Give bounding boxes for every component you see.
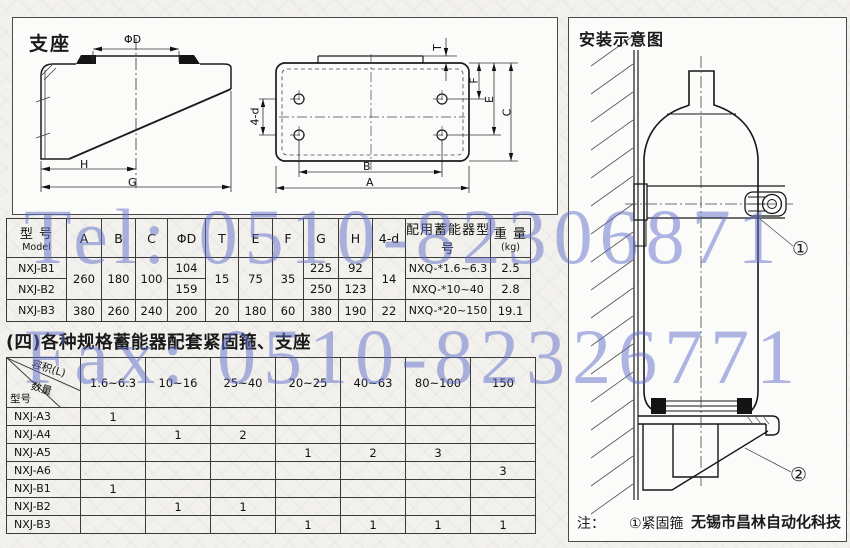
cell-qty <box>276 408 341 426</box>
cell-qty <box>471 498 536 516</box>
qty-row-nxj-b3: NXJ-B3 1 1 1 1 <box>7 516 536 534</box>
cell-h: 123 <box>339 279 373 300</box>
cell-weight: 2.8 <box>491 279 531 300</box>
column-header-t: T <box>206 219 239 258</box>
cell-qty <box>146 480 211 498</box>
dim-label-t: T <box>432 44 443 51</box>
spec-row-nxj-b3: NXJ-B3 380 260 240 200 20 180 60 380 190… <box>7 300 531 322</box>
dim-label-h: H <box>80 159 88 170</box>
cell-qty <box>81 516 146 534</box>
cell-h: 92 <box>339 258 373 279</box>
cell-model: NXJ-B1 <box>7 258 67 279</box>
cell-g: 250 <box>304 279 339 300</box>
cell-qty: 2 <box>211 426 276 444</box>
cell-qty <box>341 480 406 498</box>
installation-panel: 安装示意图 ① ② 注： ①紧固箍 无锡市昌林自动化科技 <box>568 17 847 542</box>
cell-h: 190 <box>339 300 373 322</box>
cell-t: 20 <box>206 300 239 322</box>
cell-model: NXJ-A6 <box>7 462 81 480</box>
cell-qty: 1 <box>81 408 146 426</box>
column-header-model: 型 号 Model <box>7 219 67 258</box>
dim-label-a: A <box>366 177 374 188</box>
cell-qty <box>211 408 276 426</box>
cell-weight: 2.5 <box>491 258 531 279</box>
cell-qty <box>276 498 341 516</box>
cell-model: NXJ-B2 <box>7 279 67 300</box>
cell-a: 260 <box>67 258 102 300</box>
cell-phid: 159 <box>168 279 206 300</box>
cell-qty: 1 <box>146 498 211 516</box>
column-header-b: B <box>102 219 136 258</box>
cell-qty: 1 <box>81 480 146 498</box>
column-header-c: C <box>136 219 168 258</box>
dim-label-e: E <box>484 96 495 103</box>
cell-qty <box>341 498 406 516</box>
cell-model: NXJ-A4 <box>7 426 81 444</box>
cell-qty: 3 <box>471 462 536 480</box>
spec-table: 型 号 Model A B C ΦD T E F G H 4-d 配用蓄能器型号… <box>6 218 531 322</box>
cell-phid: 200 <box>168 300 206 322</box>
cell-e: 75 <box>239 258 273 300</box>
cell-c: 240 <box>136 300 168 322</box>
header-model-en: Model <box>7 242 66 253</box>
qty-row-nxj-a4: NXJ-A4 1 2 <box>7 426 536 444</box>
cell-qty <box>341 408 406 426</box>
cell-4d: 22 <box>373 300 406 322</box>
cell-qty <box>81 426 146 444</box>
cell-qty <box>406 480 471 498</box>
cell-qty <box>211 516 276 534</box>
cell-accumulator: NXQ-*20~150 <box>406 300 491 322</box>
cell-qty <box>406 498 471 516</box>
bracket-views-drawing <box>13 18 557 214</box>
cell-4d: 14 <box>373 258 406 300</box>
cell-qty <box>146 462 211 480</box>
cell-model: NXJ-A3 <box>7 408 81 426</box>
qty-row-nxj-a5: NXJ-A5 1 2 3 <box>7 444 536 462</box>
cell-weight: 19.1 <box>491 300 531 322</box>
dim-label-4d: 4-d <box>249 108 260 126</box>
dim-label-phi-d: ΦD <box>124 34 141 45</box>
cell-model: NXJ-A5 <box>7 444 81 462</box>
cell-e: 180 <box>239 300 273 322</box>
cell-qty <box>81 498 146 516</box>
column-header-weight: 重 量 (kg) <box>491 219 531 258</box>
header-weight-cn: 重 量 <box>491 223 530 242</box>
cell-qty <box>146 408 211 426</box>
cell-qty <box>406 426 471 444</box>
cell-c: 100 <box>136 258 168 300</box>
quantity-header-row: 容积(L) 数量 型号 1.6~6.3 10~16 25~40 20~25 40… <box>7 358 536 408</box>
cell-model: NXJ-B3 <box>7 300 67 322</box>
qty-row-nxj-b2: NXJ-B2 1 1 <box>7 498 536 516</box>
company-name: 无锡市昌林自动化科技 <box>691 511 841 532</box>
cell-qty: 2 <box>341 444 406 462</box>
dim-label-b: B <box>363 161 371 172</box>
catalog-page: 支座 ΦD H G B A T F E C 4-d <box>0 0 850 548</box>
header-model-cn: 型 号 <box>7 223 66 242</box>
callout-2: ② <box>790 466 807 485</box>
callout-1: ① <box>792 240 809 259</box>
bracket-drawing-title: 支座 <box>29 29 71 56</box>
dim-label-f: F <box>469 77 480 83</box>
qty-row-nxj-b1: NXJ-B1 1 <box>7 480 536 498</box>
cell-qty: 1 <box>276 444 341 462</box>
dim-label-c: C <box>501 109 512 117</box>
qty-row-nxj-a6: NXJ-A6 3 <box>7 462 536 480</box>
cell-a: 380 <box>67 300 102 322</box>
cell-model: NXJ-B2 <box>7 498 81 516</box>
cell-qty: 1 <box>146 426 211 444</box>
column-header-4d: 4-d <box>373 219 406 258</box>
column-header-volume: 10~16 <box>146 358 211 408</box>
cell-qty: 1 <box>211 498 276 516</box>
cell-qty: 1 <box>471 516 536 534</box>
column-header-volume: 40~63 <box>341 358 406 408</box>
column-header-volume: 25~40 <box>211 358 276 408</box>
cell-qty <box>211 444 276 462</box>
column-header-g: G <box>304 219 339 258</box>
quantity-table: 容积(L) 数量 型号 1.6~6.3 10~16 25~40 20~25 40… <box>6 357 536 534</box>
column-header-accumulator: 配用蓄能器型号 <box>406 219 491 258</box>
cell-qty <box>276 462 341 480</box>
column-header-h: H <box>339 219 373 258</box>
column-header-e: E <box>239 219 273 258</box>
cell-qty <box>471 426 536 444</box>
cell-qty <box>146 444 211 462</box>
cell-qty <box>471 480 536 498</box>
spec-row-nxj-b1: NXJ-B1 260 180 100 104 15 75 35 225 92 1… <box>7 258 531 279</box>
cell-qty <box>81 462 146 480</box>
header-weight-unit: (kg) <box>491 242 530 253</box>
footnote-prefix: 注： <box>577 513 605 533</box>
column-header-f: F <box>273 219 304 258</box>
cell-accumulator: NXQ-*1.6~6.3 <box>406 258 491 279</box>
column-header-volume: 80~100 <box>406 358 471 408</box>
section-title: (四)各种规格蓄能器配套紧固箍、支座 <box>6 329 311 354</box>
cell-model: NXJ-B3 <box>7 516 81 534</box>
column-header-phid: ΦD <box>168 219 206 258</box>
cell-qty: 3 <box>406 444 471 462</box>
cell-qty <box>471 444 536 462</box>
cell-qty: 1 <box>406 516 471 534</box>
cell-qty <box>341 462 406 480</box>
cell-qty <box>276 426 341 444</box>
cell-phid: 104 <box>168 258 206 279</box>
cell-f: 60 <box>273 300 304 322</box>
corner-label-model: 型号 <box>10 391 31 406</box>
cell-qty <box>406 408 471 426</box>
installation-drawing <box>569 18 846 541</box>
cell-model: NXJ-B1 <box>7 480 81 498</box>
cell-qty <box>276 480 341 498</box>
cell-g: 380 <box>304 300 339 322</box>
cell-accumulator: NXQ-*10~40 <box>406 279 491 300</box>
column-header-volume: 20~25 <box>276 358 341 408</box>
column-header-volume: 150 <box>471 358 536 408</box>
qty-row-nxj-a3: NXJ-A3 1 <box>7 408 536 426</box>
dim-label-g: G <box>128 177 137 188</box>
cell-qty <box>341 426 406 444</box>
cell-qty <box>406 462 471 480</box>
cell-qty <box>471 408 536 426</box>
spec-header-row: 型 号 Model A B C ΦD T E F G H 4-d 配用蓄能器型号… <box>7 219 531 258</box>
cell-qty: 1 <box>341 516 406 534</box>
cell-qty <box>211 480 276 498</box>
cell-qty <box>211 462 276 480</box>
cell-t: 15 <box>206 258 239 300</box>
cell-g: 225 <box>304 258 339 279</box>
column-header-a: A <box>67 219 102 258</box>
cell-qty: 1 <box>276 516 341 534</box>
column-header-volume: 1.6~6.3 <box>81 358 146 408</box>
cell-f: 35 <box>273 258 304 300</box>
cell-qty <box>81 444 146 462</box>
cell-b: 260 <box>102 300 136 322</box>
installation-title: 安装示意图 <box>579 26 664 50</box>
cell-qty <box>146 516 211 534</box>
corner-header-cell: 容积(L) 数量 型号 <box>7 358 81 408</box>
footnote-item-clamp: ①紧固箍 <box>629 513 684 533</box>
bracket-drawing-panel: 支座 ΦD H G B A T F E C 4-d <box>12 17 558 215</box>
cell-b: 180 <box>102 258 136 300</box>
